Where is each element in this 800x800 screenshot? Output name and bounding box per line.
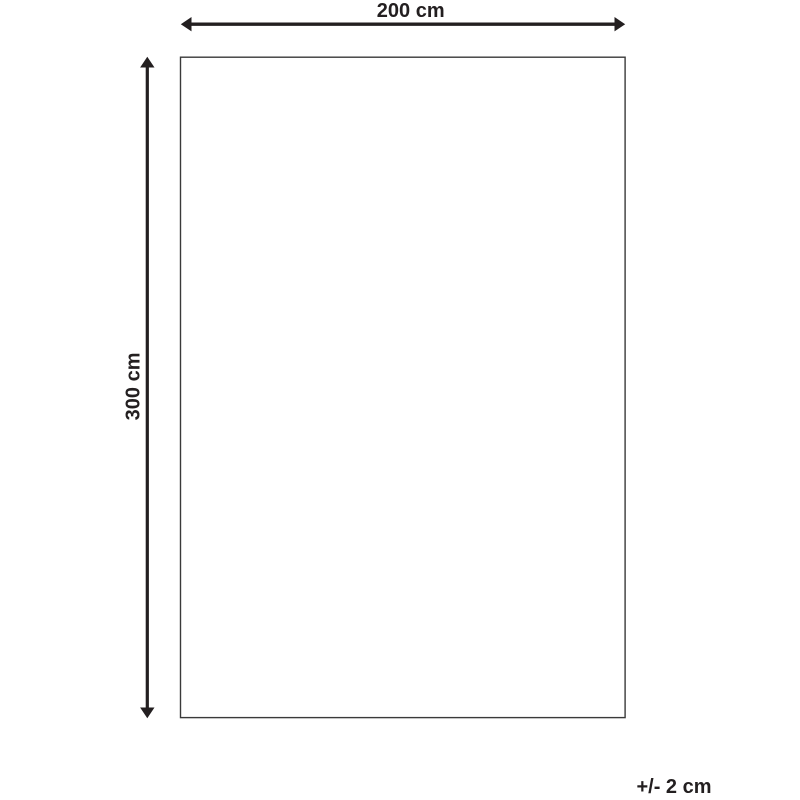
svg-text:+/- 2 cm: +/- 2 cm [636, 776, 711, 798]
svg-text:300 cm: 300 cm [122, 352, 144, 420]
svg-text:200 cm: 200 cm [377, 0, 445, 22]
